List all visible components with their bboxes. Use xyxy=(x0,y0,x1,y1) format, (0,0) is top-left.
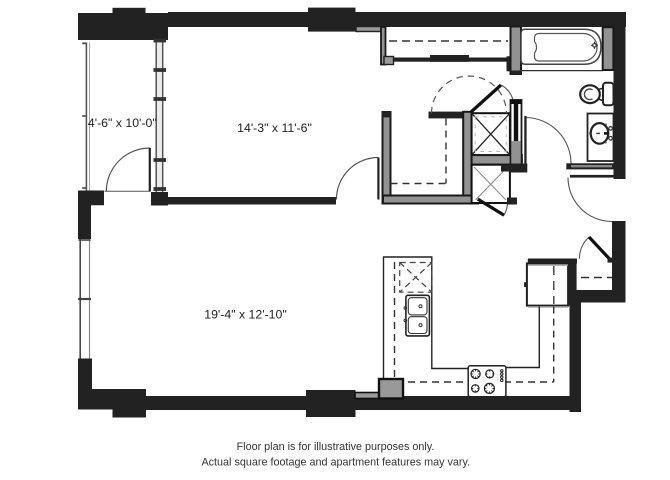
svg-text:4'-6" x 10'-0": 4'-6" x 10'-0" xyxy=(88,116,157,130)
svg-text:19'-4" x 12'-10": 19'-4" x 12'-10" xyxy=(204,307,286,321)
svg-text:14'-3" x 11'-6": 14'-3" x 11'-6" xyxy=(237,121,312,135)
svg-text:Floor plan is for illustrative: Floor plan is for illustrative purposes … xyxy=(237,441,435,453)
svg-text:Actual square footage and apar: Actual square footage and apartment feat… xyxy=(201,457,470,469)
